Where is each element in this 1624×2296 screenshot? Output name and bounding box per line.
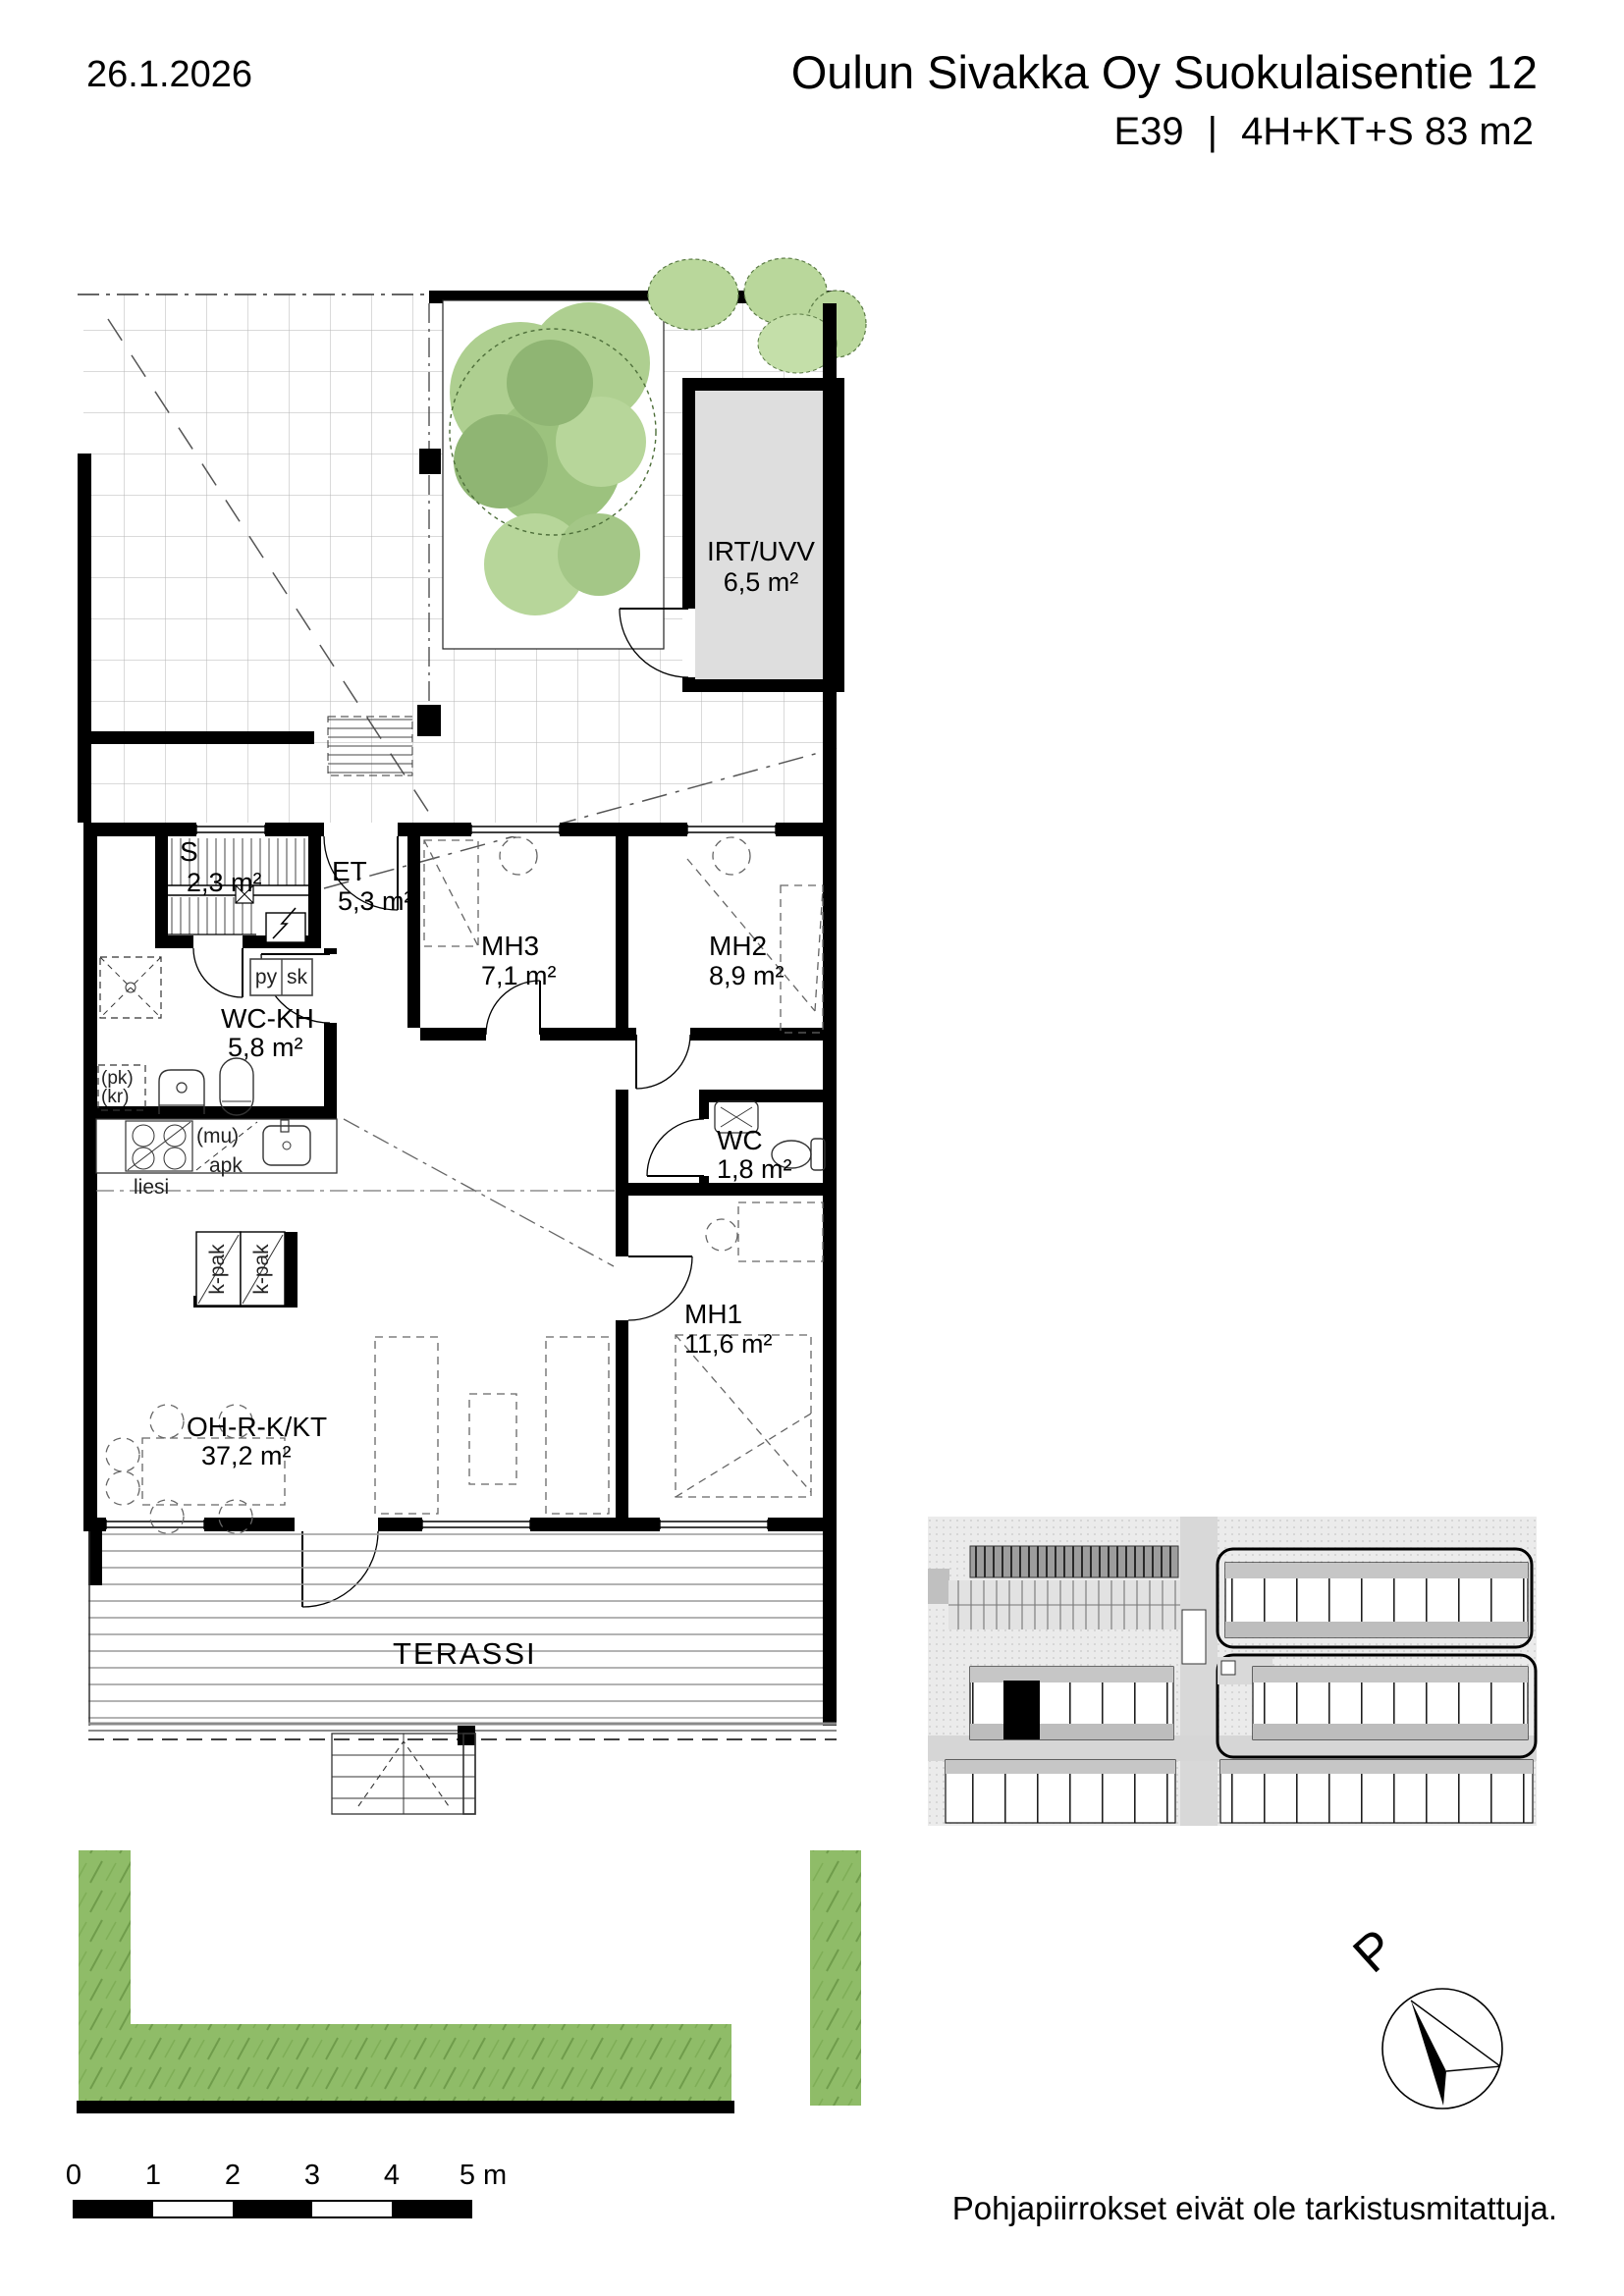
chair-mh3	[500, 837, 537, 875]
room-area-oh: 37,2 m²	[201, 1441, 292, 1470]
apartment-id: E39	[1114, 110, 1184, 154]
room-label-irt-uvv: IRT/UVV	[687, 536, 835, 566]
carport-row	[970, 1546, 1178, 1577]
desk-mh1	[738, 1202, 823, 1261]
apartment-subtitle: E39 | 4H+KT+S 83 m2	[1114, 110, 1535, 154]
room-label-mh3: MH3	[481, 931, 539, 961]
sofa-set	[375, 1337, 609, 1514]
terrace	[88, 1531, 837, 1814]
room-area-mh1: 11,6 m²	[684, 1329, 773, 1359]
fixture-label-sk: sk	[282, 966, 312, 989]
room-label-et: ET	[332, 856, 367, 886]
building-b	[970, 1667, 1173, 1739]
scale-bar	[74, 2201, 471, 2217]
subtitle-separator: |	[1208, 110, 1218, 154]
electrical-panel	[266, 908, 305, 942]
scale-tick-2: 2	[225, 2160, 241, 2191]
chair-mh2	[713, 837, 750, 875]
room-label-wc-kh: WC-KH	[221, 1003, 314, 1034]
scale-tick-1: 1	[145, 2160, 161, 2191]
fixture-label-liesi: liesi	[134, 1176, 169, 1200]
scale-tick-5: 5 m	[460, 2160, 507, 2191]
fixture-label-mu: (mu)	[196, 1125, 239, 1148]
room-area-wc-kh: 5,8 m²	[228, 1033, 303, 1062]
fixture-label-kr: (kr)	[101, 1087, 129, 1107]
room-area-irt-uvv: 6,5 m²	[687, 567, 835, 597]
building-d	[946, 1760, 1175, 1823]
apartment-spec: 4H+KT+S 83 m2	[1241, 110, 1534, 154]
room-area-et: 5,3 m²	[338, 886, 413, 916]
hedges	[77, 1850, 861, 2113]
building-c	[1218, 1657, 1528, 1739]
floorplan-page: 26.1.2026 Oulun Sivakka Oy Suokulaisenti…	[0, 0, 1624, 2296]
room-label-wc: WC	[717, 1125, 763, 1155]
fixture-label-k-pak-2: k-pak	[250, 1244, 274, 1294]
room-area-wc: 1,8 m²	[717, 1154, 792, 1184]
chair-mh1	[706, 1219, 737, 1251]
terrace-post	[458, 1726, 475, 1745]
page-title: Oulun Sivakka Oy Suokulaisentie 12	[791, 47, 1538, 99]
highlighted-unit	[1003, 1681, 1040, 1739]
fixture-label-k-pak-1: k-pak	[206, 1244, 230, 1294]
fixture-label-py: py	[250, 966, 282, 989]
building-e	[1220, 1760, 1533, 1823]
room-label-oh: OH-R-K/KT	[187, 1412, 327, 1442]
room-area-sauna: 2,3 m²	[187, 868, 262, 897]
building-a	[1225, 1563, 1528, 1637]
closet-mh2	[781, 885, 823, 1033]
plan-date: 26.1.2026	[86, 54, 252, 96]
boundary-line	[77, 2101, 734, 2113]
doormat	[328, 717, 412, 775]
scale-tick-4: 4	[384, 2160, 400, 2191]
scale-tick-0: 0	[66, 2160, 81, 2191]
room-label-sauna: S	[180, 836, 198, 867]
hedge-right	[810, 1850, 861, 2106]
room-area-mh3: 7,1 m²	[481, 961, 557, 990]
room-label-terassi: TERASSI	[393, 1637, 537, 1672]
terrace-steps	[332, 1734, 475, 1814]
north-arrow	[1382, 1989, 1502, 2109]
pergola-post	[419, 449, 441, 474]
room-label-mh1: MH1	[684, 1299, 742, 1329]
fixture-label-apk: apk	[209, 1154, 243, 1178]
room-label-mh2: MH2	[709, 931, 767, 961]
disclaimer-text: Pohjapiirrokset eivät ole tarkistusmitat…	[952, 2191, 1557, 2227]
hedge-bottom	[79, 2024, 731, 2106]
site-plan	[928, 1517, 1537, 1826]
entry-post	[417, 705, 441, 736]
room-area-mh2: 8,9 m²	[709, 961, 785, 990]
scale-tick-3: 3	[304, 2160, 320, 2191]
tree	[443, 300, 664, 649]
